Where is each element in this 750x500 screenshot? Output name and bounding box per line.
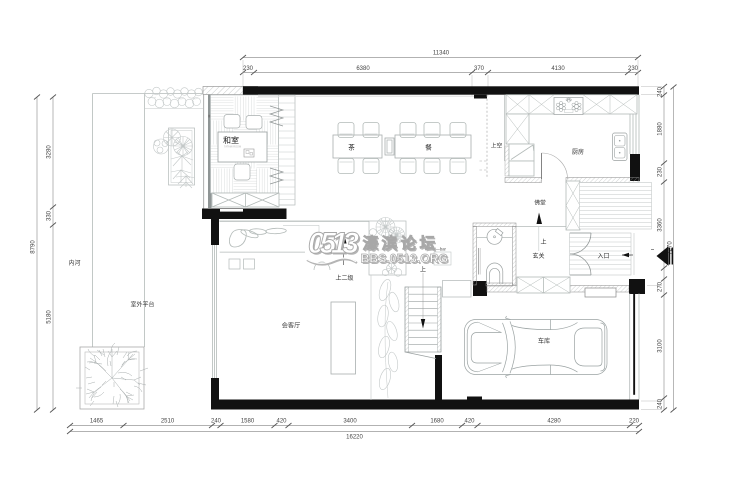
svg-text:6380: 6380 — [356, 66, 370, 72]
svg-text:11340: 11340 — [433, 51, 450, 57]
svg-text:玄关: 玄关 — [532, 252, 544, 260]
svg-text:1580: 1580 — [241, 419, 255, 425]
svg-text:1465: 1465 — [90, 419, 104, 425]
svg-text:1680: 1680 — [430, 419, 444, 425]
svg-text:240: 240 — [211, 419, 222, 425]
svg-text:4130: 4130 — [551, 66, 565, 72]
svg-text:230: 230 — [658, 166, 664, 177]
svg-text:8790: 8790 — [31, 240, 37, 254]
svg-text:370: 370 — [474, 66, 485, 72]
svg-text:厨房: 厨房 — [572, 148, 584, 156]
svg-text:3360: 3360 — [658, 218, 664, 232]
svg-text:420: 420 — [464, 419, 475, 425]
svg-text:240: 240 — [658, 86, 664, 97]
svg-text:上: 上 — [540, 238, 546, 246]
svg-text:330: 330 — [47, 210, 53, 221]
svg-text:内河: 内河 — [68, 259, 80, 267]
svg-text:餐: 餐 — [425, 143, 432, 152]
svg-text:3100: 3100 — [658, 339, 664, 353]
svg-text:TATAMI ROOM: TATAMI ROOM — [224, 146, 241, 149]
svg-text:上二级: 上二级 — [335, 274, 353, 282]
svg-text:420: 420 — [276, 419, 287, 425]
svg-text:佛堂: 佛堂 — [534, 199, 546, 207]
svg-text:茶: 茶 — [348, 143, 355, 152]
svg-text:2510: 2510 — [161, 419, 175, 425]
svg-text:270: 270 — [658, 281, 664, 292]
svg-text:230: 230 — [243, 66, 254, 72]
svg-text:3400: 3400 — [343, 419, 357, 425]
svg-text:1880: 1880 — [658, 122, 664, 136]
svg-text:上空: 上空 — [491, 142, 503, 150]
svg-text:3280: 3280 — [47, 145, 53, 159]
svg-text:和室: 和室 — [223, 135, 239, 145]
svg-text:4280: 4280 — [547, 419, 561, 425]
svg-text:濠滨论坛: 濠滨论坛 — [363, 234, 439, 253]
svg-text:240: 240 — [658, 398, 664, 409]
svg-text:会客厅: 会客厅 — [282, 322, 301, 330]
svg-text:0513: 0513 — [308, 227, 359, 260]
svg-text:车库: 车库 — [538, 337, 550, 345]
svg-text:220: 220 — [629, 419, 640, 425]
svg-text:室外平台: 室外平台 — [130, 301, 154, 309]
svg-text:230: 230 — [628, 66, 639, 72]
svg-text:入口: 入口 — [597, 253, 609, 260]
svg-text:16220: 16220 — [346, 435, 363, 441]
svg-text:5180: 5180 — [47, 310, 53, 324]
svg-text:BBS.0513.ORG: BBS.0513.ORG — [361, 252, 448, 266]
